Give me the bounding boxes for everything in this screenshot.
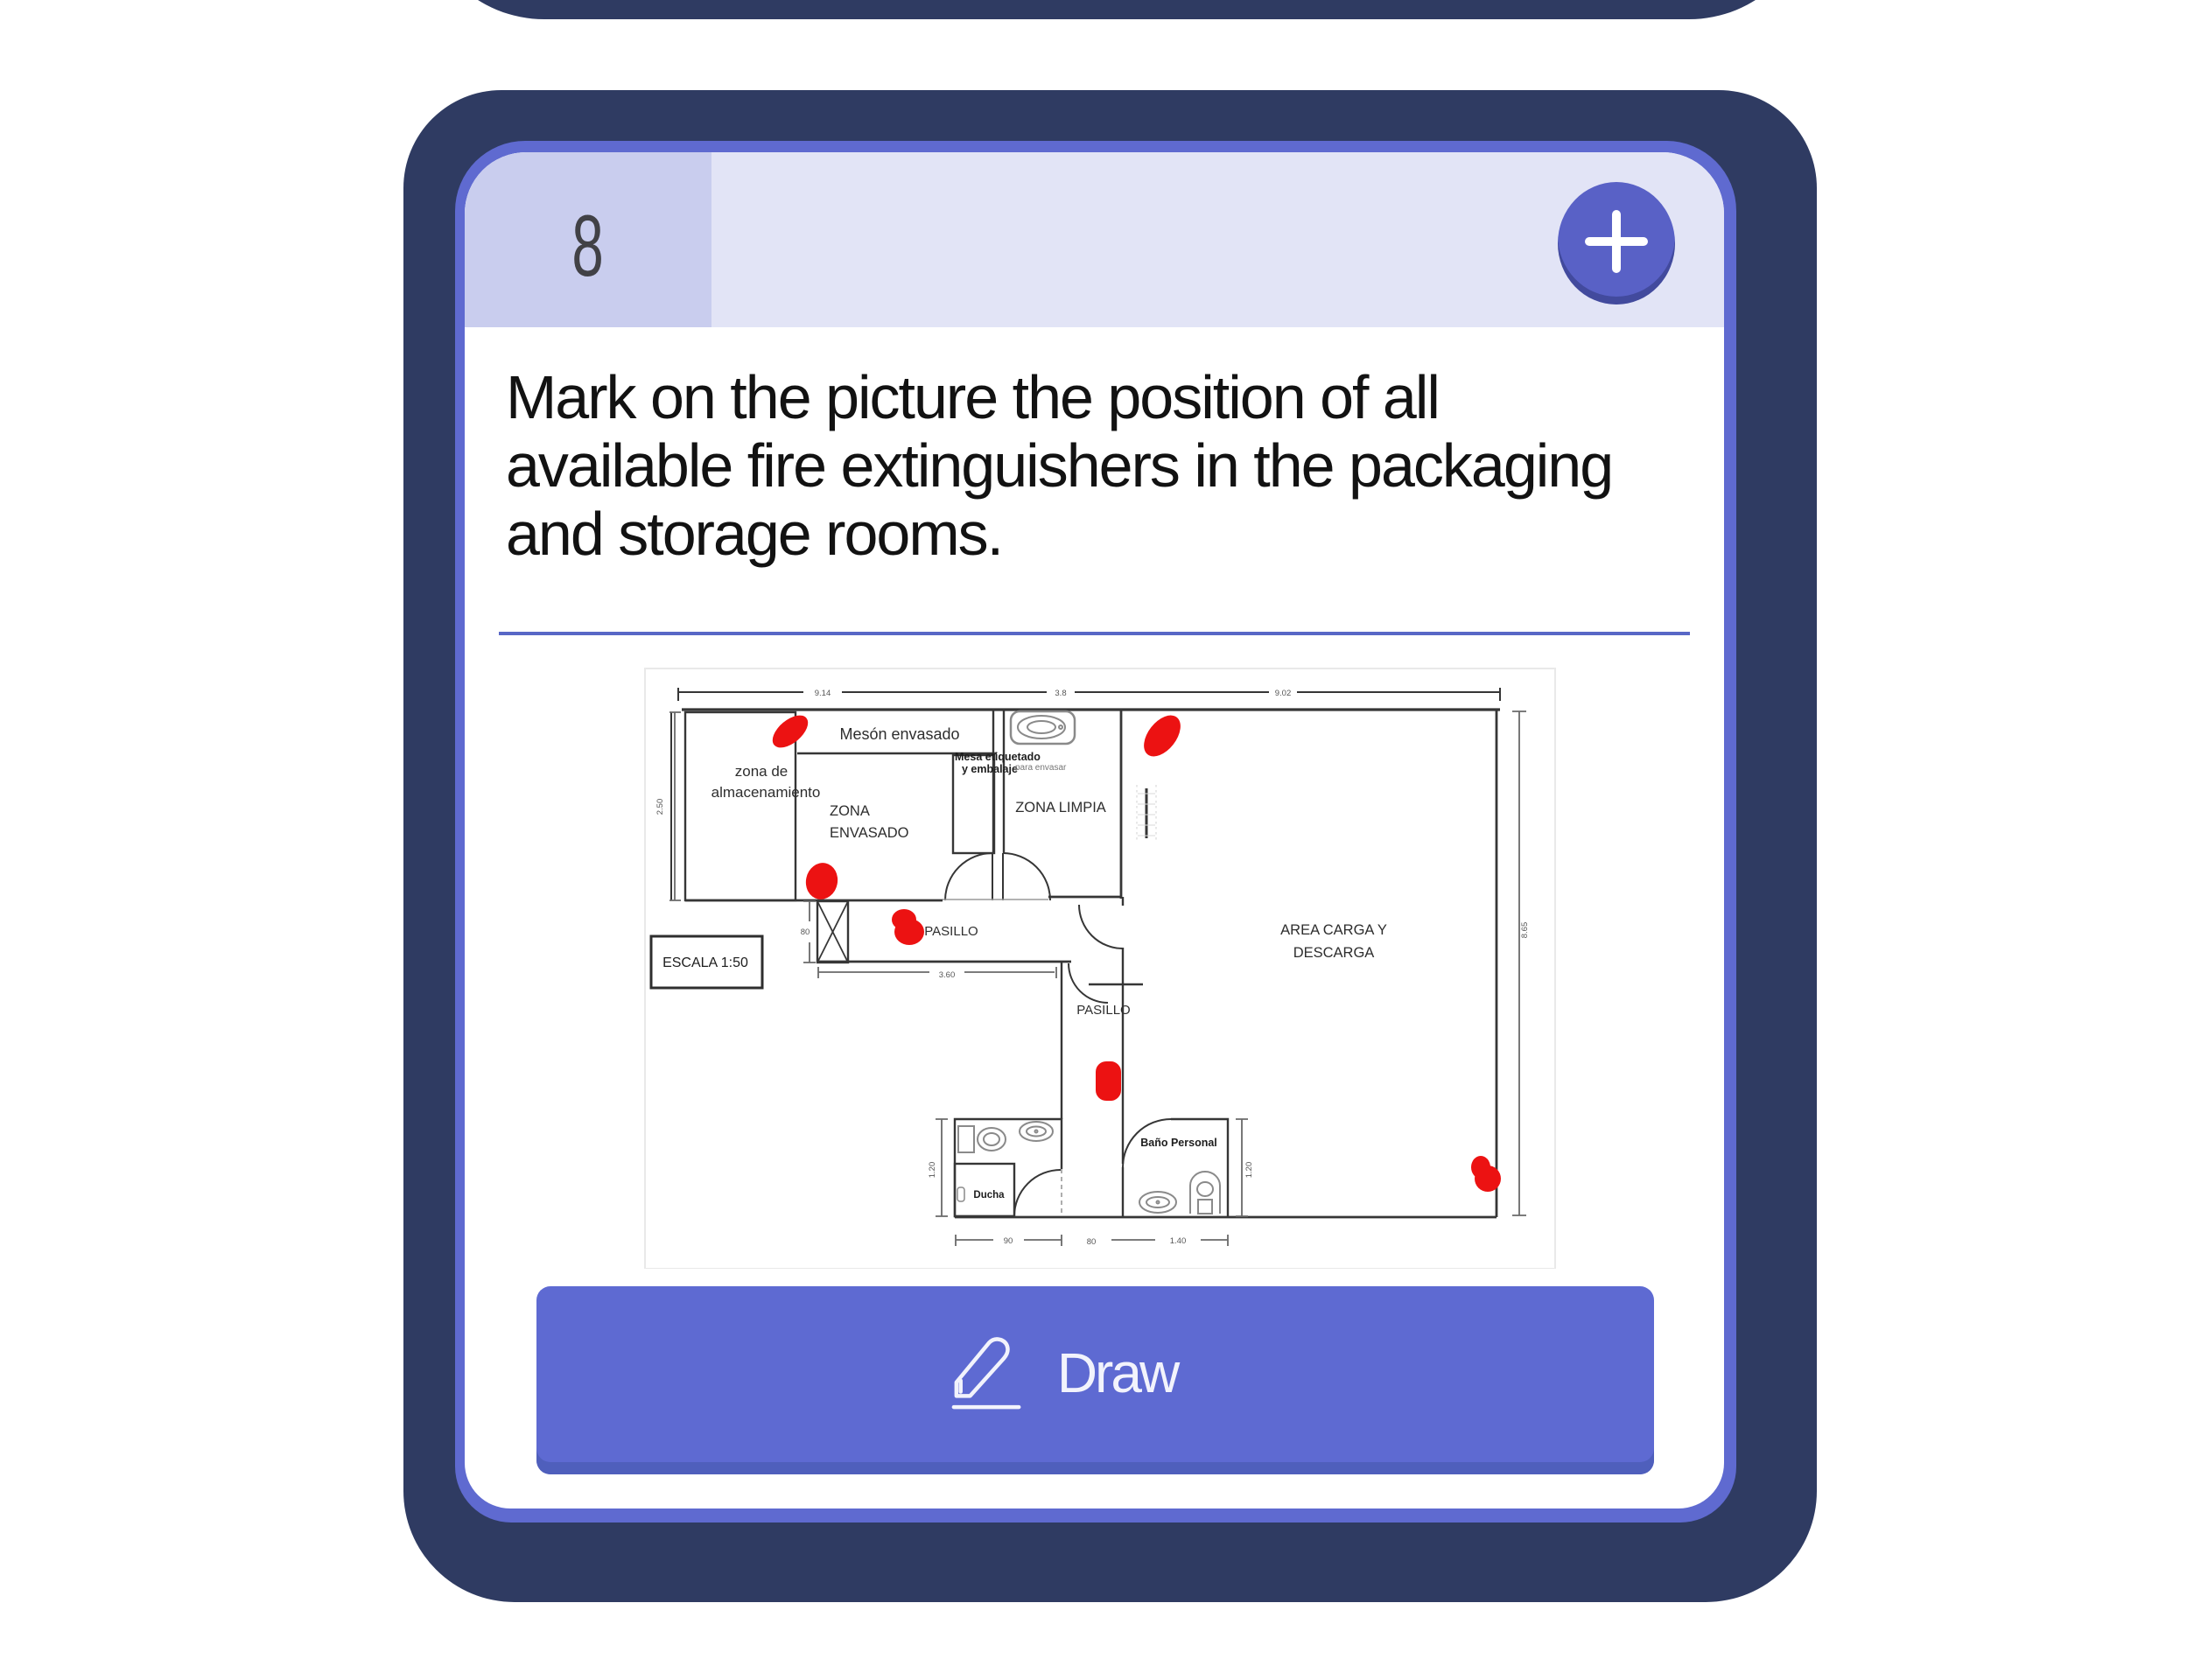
svg-text:9.02: 9.02 (1275, 689, 1292, 698)
svg-text:80: 80 (801, 927, 810, 937)
svg-text:PASILLO: PASILLO (924, 924, 978, 939)
svg-text:zona de: zona de (735, 763, 789, 780)
svg-text:Mesón envasado: Mesón envasado (839, 725, 959, 743)
svg-text:para envasar: para envasar (1015, 763, 1067, 773)
svg-text:ESCALA 1:50: ESCALA 1:50 (662, 955, 748, 970)
svg-text:2.50: 2.50 (655, 799, 665, 815)
svg-text:1.20: 1.20 (1244, 1162, 1254, 1179)
svg-text:ZONA LIMPIA: ZONA LIMPIA (1015, 800, 1106, 815)
svg-text:PASILLO: PASILLO (1076, 1003, 1130, 1018)
svg-text:almacenamiento: almacenamiento (711, 784, 821, 801)
svg-text:9.14: 9.14 (815, 689, 831, 698)
svg-text:ENVASADO: ENVASADO (830, 825, 909, 841)
svg-text:ZONA: ZONA (830, 803, 870, 819)
svg-text:Baño Personal: Baño Personal (1140, 1137, 1217, 1149)
svg-text:y embalaje: y embalaje (962, 763, 1018, 775)
svg-text:80: 80 (1087, 1237, 1097, 1247)
svg-text:1.40: 1.40 (1170, 1236, 1187, 1246)
svg-text:AREA CARGA Y: AREA CARGA Y (1280, 922, 1387, 938)
svg-text:1.20: 1.20 (928, 1162, 937, 1179)
svg-text:Ducha: Ducha (973, 1190, 1005, 1200)
svg-text:Mesa etiquetado: Mesa etiquetado (955, 751, 1041, 763)
svg-text:8.65: 8.65 (1520, 922, 1530, 939)
svg-text:90: 90 (1004, 1236, 1013, 1246)
svg-text:3.60: 3.60 (939, 970, 956, 980)
svg-text:3.8: 3.8 (1055, 689, 1066, 698)
svg-text:DESCARGA: DESCARGA (1293, 945, 1375, 961)
